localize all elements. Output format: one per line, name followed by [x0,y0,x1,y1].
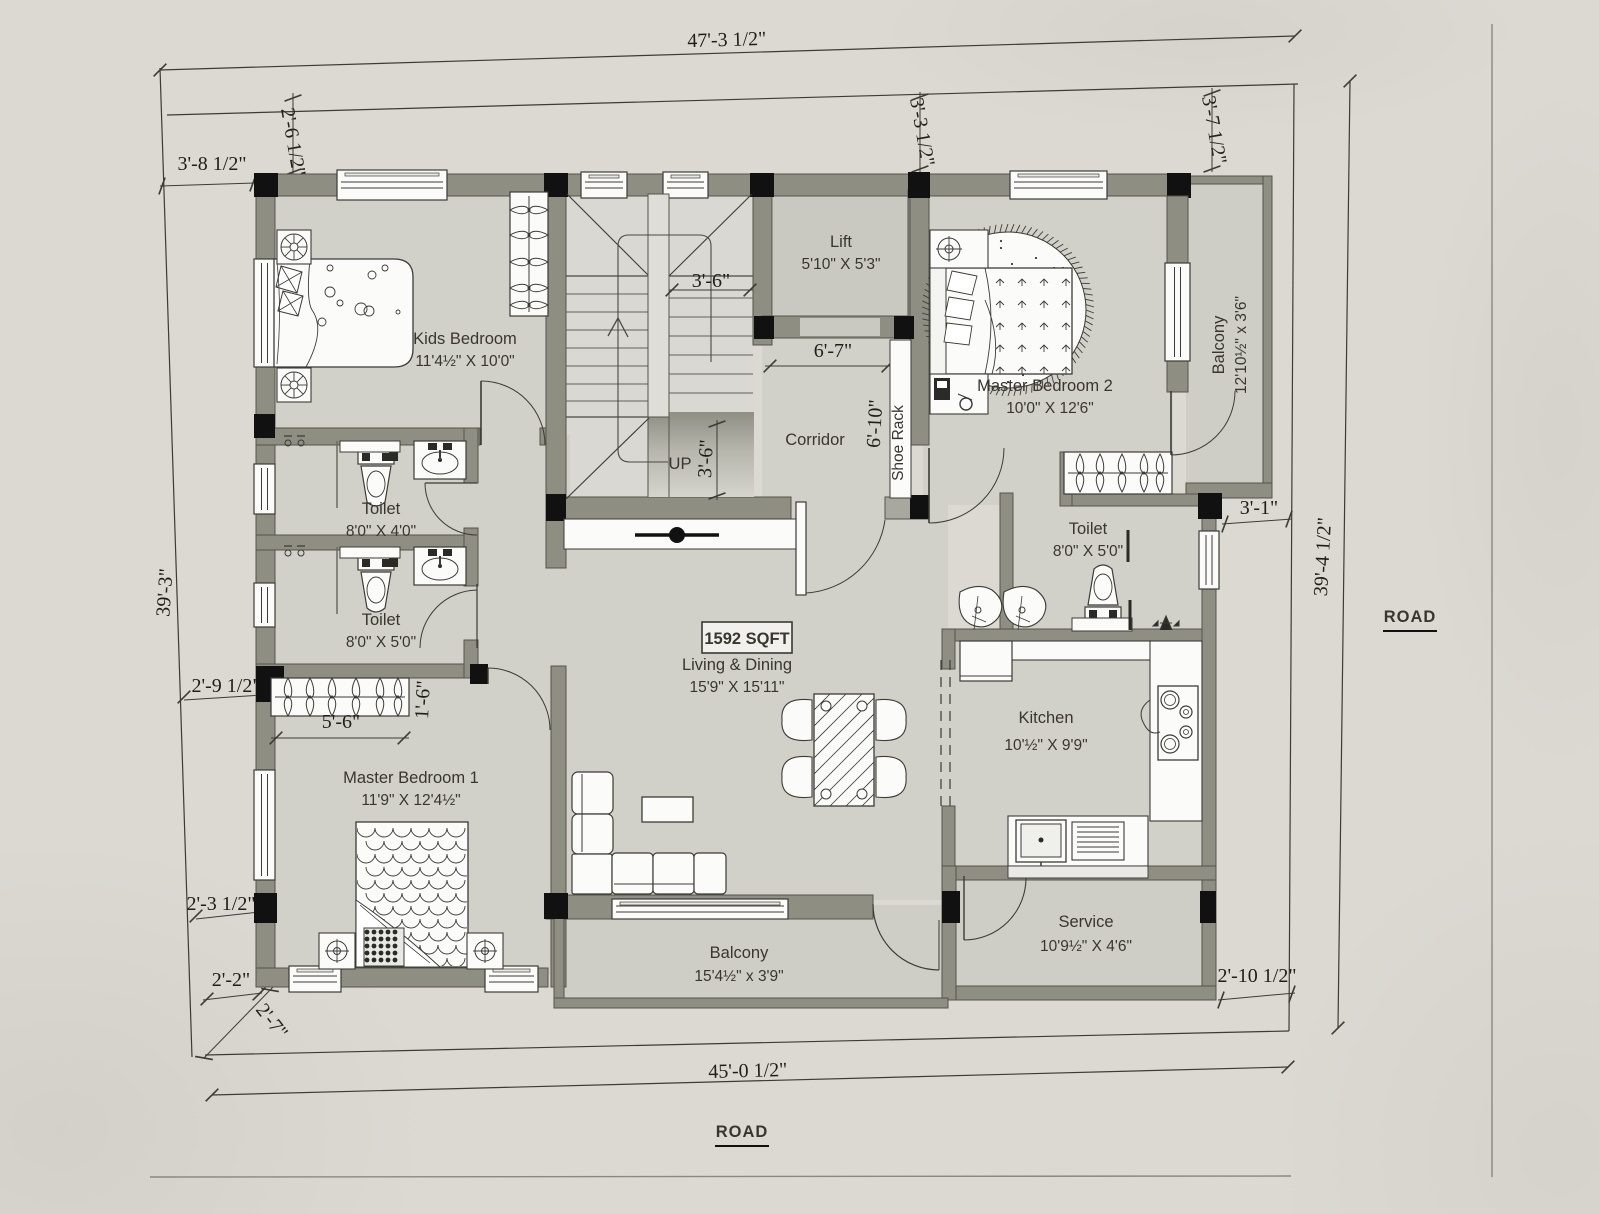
svg-text:6'-10": 6'-10" [863,399,888,449]
svg-text:6'-7": 6'-7" [814,340,852,362]
svg-text:ROAD: ROAD [716,1123,769,1141]
svg-text:Toilet: Toilet [1069,520,1108,538]
svg-text:UP: UP [669,455,692,473]
svg-text:47'-3 1/2": 47'-3 1/2" [687,28,767,52]
svg-text:Corridor: Corridor [785,431,845,449]
svg-text:8'0" X 4'0": 8'0" X 4'0" [346,523,416,540]
svg-text:39'-3": 39'-3" [152,568,177,618]
svg-text:Kids Bedroom: Kids Bedroom [413,330,517,348]
svg-text:2'-3 1/2": 2'-3 1/2" [187,893,256,915]
svg-text:1592 SQFT: 1592 SQFT [704,630,789,648]
svg-text:5'-6": 5'-6" [322,711,360,733]
svg-text:Living & Dining: Living & Dining [682,656,792,674]
svg-text:11'4½" X 10'0": 11'4½" X 10'0" [415,353,514,370]
svg-text:Master Bedroom 2: Master Bedroom 2 [977,377,1113,395]
svg-text:ROAD: ROAD [1384,608,1437,626]
svg-text:10'9½" X 4'6": 10'9½" X 4'6" [1040,938,1132,955]
svg-text:15'4½" x 3'9": 15'4½" x 3'9" [694,968,783,985]
svg-text:Lift: Lift [830,233,852,251]
svg-text:Balcony: Balcony [710,944,769,962]
svg-text:11'9" X 12'4½": 11'9" X 12'4½" [361,792,460,809]
svg-text:3'-6": 3'-6" [692,270,730,292]
svg-text:10'½" X 9'9": 10'½" X 9'9" [1004,737,1087,754]
svg-text:2'-2": 2'-2" [212,969,250,991]
svg-text:Toilet: Toilet [362,500,401,518]
svg-text:2'-9 1/2": 2'-9 1/2" [192,675,261,697]
svg-text:3'-6": 3'-6" [694,439,718,479]
svg-text:Service: Service [1058,913,1113,931]
svg-text:12'10½" x 3'6": 12'10½" x 3'6" [1233,296,1250,394]
svg-text:15'9" X 15'11": 15'9" X 15'11" [689,679,784,696]
svg-text:2'-10 1/2": 2'-10 1/2" [1218,965,1297,987]
svg-text:3'-1": 3'-1" [1240,497,1278,519]
svg-text:Balcony: Balcony [1210,315,1228,374]
svg-text:Shoe Rack: Shoe Rack [890,405,907,481]
svg-text:Kitchen: Kitchen [1018,709,1073,727]
svg-text:10'0" X 12'6": 10'0" X 12'6" [1006,400,1094,417]
svg-text:8'0" X 5'0": 8'0" X 5'0" [1053,543,1123,560]
svg-text:5'10" X 5'3": 5'10" X 5'3" [802,256,881,273]
svg-text:3'-8 1/2": 3'-8 1/2" [178,153,247,175]
svg-text:39'-4 1/2": 39'-4 1/2" [1310,517,1336,597]
svg-text:45'-0 1/2": 45'-0 1/2" [708,1059,788,1083]
svg-text:1'-6": 1'-6" [411,680,435,720]
svg-text:8'0" X 5'0": 8'0" X 5'0" [346,634,416,651]
svg-text:Toilet: Toilet [362,611,401,629]
svg-text:Master Bedroom 1: Master Bedroom 1 [343,769,479,787]
